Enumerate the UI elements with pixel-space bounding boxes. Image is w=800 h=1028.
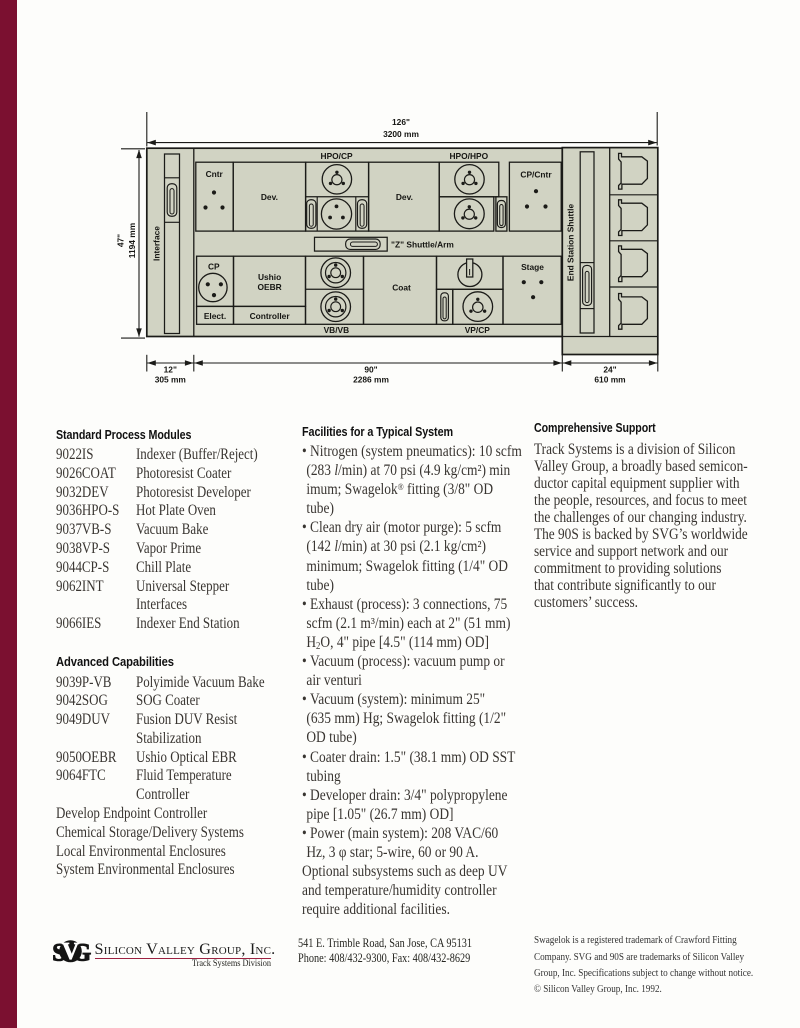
svg-text:Cntr: Cntr [206,169,224,179]
svg-text:OEBR: OEBR [257,282,281,292]
svg-text:Interface: Interface [152,226,162,261]
svg-text:Ushio: Ushio [258,272,281,282]
svg-text:24": 24" [603,364,616,374]
svg-text:VB/VB: VB/VB [324,325,350,335]
svg-text:"Z" Shuttle/Arm: "Z" Shuttle/Arm [391,240,454,250]
svg-text:Dev.: Dev. [261,192,278,202]
svg-text:Stage: Stage [521,262,544,272]
svg-text:CP/Cntr: CP/Cntr [520,170,552,180]
svg-text:HPO/HPO: HPO/HPO [449,151,488,161]
svg-text:End Station Shuttle: End Station Shuttle [566,204,576,282]
svg-text:305 mm: 305 mm [155,374,186,384]
svg-text:HPO/CP: HPO/CP [321,151,354,161]
svg-text:90": 90" [364,364,377,374]
svg-text:Controller: Controller [250,311,291,321]
svg-text:Coat: Coat [392,282,411,292]
svg-text:Elect.: Elect. [204,311,226,321]
svg-text:126": 126" [392,117,410,127]
svg-text:Dev.: Dev. [396,192,413,202]
svg-text:V: V [62,939,80,965]
svg-text:2286 mm: 2286 mm [353,374,389,384]
svg-text:VP/CP: VP/CP [465,325,491,335]
svg-text:3200 mm: 3200 mm [383,129,419,139]
svg-text:47": 47" [116,234,126,247]
svg-text:1194 mm: 1194 mm [127,223,137,258]
svg-text:610 mm: 610 mm [594,374,625,384]
svg-text:12": 12" [164,364,177,374]
svg-text:CP: CP [208,261,220,271]
